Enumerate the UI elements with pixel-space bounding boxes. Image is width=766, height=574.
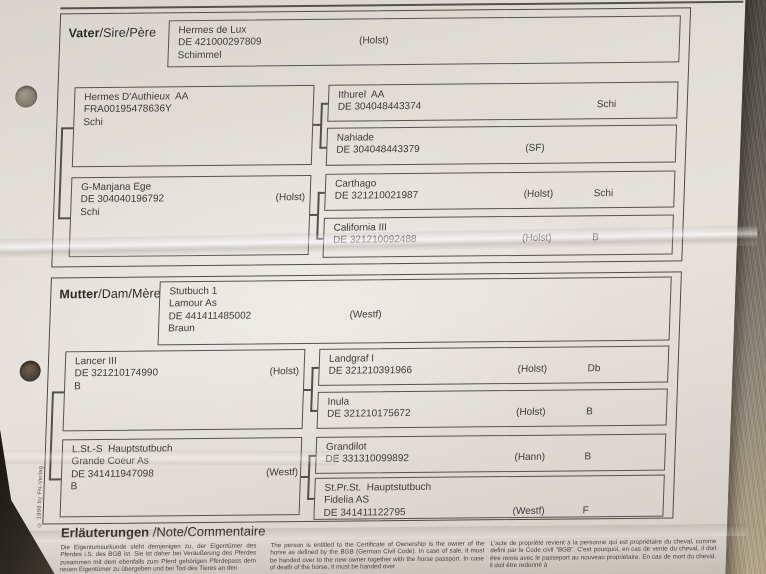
notes-english: The person is entitled to the Certificat… (270, 540, 485, 571)
pedigree-cell-sire-dam-dam: California III DE 321210092488(Holst)B (323, 214, 674, 257)
notes-french: L'acte de propriété revient à la personn… (490, 538, 717, 569)
pedigree-cell-dam-sire-dam: Inula DE 321210175672(Holst)B (317, 389, 668, 429)
pedigree-connector (316, 238, 323, 240)
pedigree-connector (58, 217, 70, 219)
pedigree-connector (309, 455, 316, 457)
photo-of-pedigree-document: Vater/Sire/Père Hermes de Lux DE 4210002… (0, 0, 766, 574)
pedigree-connector (319, 147, 326, 149)
pedigree-cell-sire-dam-sire: Carthago DE 321210021987(Holst)Schi (324, 170, 675, 210)
pedigree-cell-dam-dam-sire: Grandilot DE 331310099892(Hann)B (315, 434, 666, 474)
pedigree-cell-sire-sire-dam: Nahiade DE 304048443379(SF) (326, 124, 677, 165)
pedigree-connector (61, 127, 73, 129)
pedigree-cell-dam: Stutbuch 1 Lamour As DE 441411485002(Wes… (158, 276, 672, 345)
pedigree-connector (318, 192, 325, 194)
pedigree-cell-dam-sire-sire: Landgraf I DE 321210391966(Holst)Db (318, 346, 669, 386)
paper-sheet: Vater/Sire/Père Hermes de Lux DE 4210002… (0, 0, 746, 574)
hole-punch-top (15, 86, 38, 108)
pedigree-cell-sire-sire-sire: Ithurel AA DE 304048443374Schi (327, 81, 678, 121)
pedigree-cell-dam-dam: L.St.-S Hauptstutbuch Grande Coeur As DE… (60, 437, 303, 517)
pedigree-connector (307, 498, 314, 500)
hole-punch-bottom (19, 361, 41, 382)
notes-heading: Erläuterungen /Note/Commentaire (61, 523, 266, 540)
pedigree-connector (49, 478, 61, 480)
pedigree-cell-sire-dam: G-Manjana Ege DE 304040196792(Holst) Sch… (69, 175, 312, 257)
pedigree-connector (52, 391, 64, 393)
pedigree-cell-sire-sire: Hermes D'Authieux AA FRA00195478636Y Sch… (72, 85, 315, 167)
notes-german: Die Eigentumsurkunde steht demjenigen zu… (60, 542, 257, 573)
pedigree-cell-dam-dam-dam: St.Pr.St. Hauptstutbuch Fidelia AS DE 34… (313, 475, 664, 520)
pedigree-connector (312, 367, 319, 369)
pedigree-cell-dam-sire: Lancer III DE 321210174990(Holst) B (63, 349, 306, 431)
pedigree-connector (321, 103, 328, 105)
pedigree-connector (310, 410, 317, 412)
pedigree-cell-sire: Hermes de Lux DE 421000297809(Holst) Sch… (167, 15, 681, 67)
sire-section-label: Vater/Sire/Père (68, 25, 156, 40)
dam-section-label: Mutter/Dam/Mère (59, 286, 161, 301)
